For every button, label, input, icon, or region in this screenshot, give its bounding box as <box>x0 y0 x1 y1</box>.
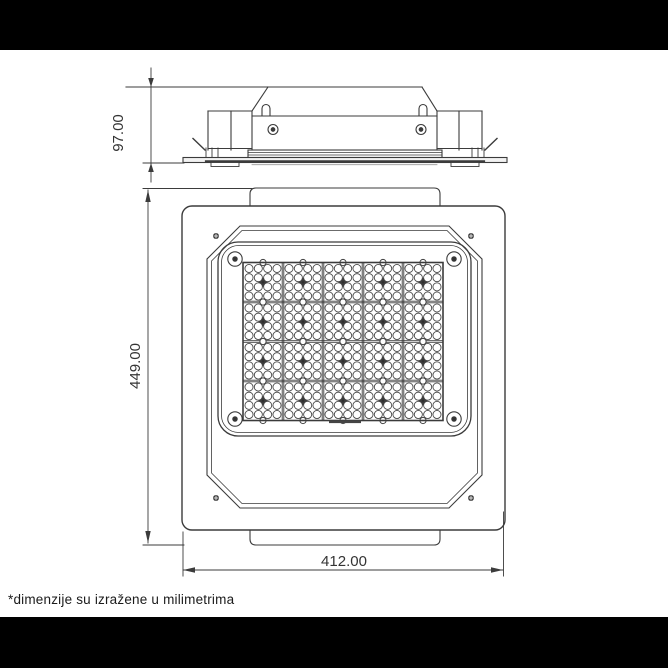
lens-circle <box>264 362 272 370</box>
lens-circle <box>433 362 441 370</box>
lens-circle <box>245 274 253 282</box>
lens-circle <box>405 264 413 272</box>
lens-circle <box>285 283 293 291</box>
lens-circle <box>393 264 401 272</box>
lens-circle <box>344 371 352 379</box>
led-core <box>341 399 344 402</box>
lens-circle <box>325 343 333 351</box>
lens-circle <box>294 392 302 400</box>
lens-circle <box>254 274 262 282</box>
lens-circle <box>424 292 432 300</box>
lens-circle <box>254 371 262 379</box>
lens-circle <box>304 401 312 409</box>
lens-circle <box>393 343 401 351</box>
lens-circle <box>264 304 272 312</box>
module-screw <box>420 299 426 305</box>
lens-circle <box>264 401 272 409</box>
lens-circle <box>405 313 413 321</box>
lens-circle <box>254 410 262 418</box>
lens-circle <box>433 343 441 351</box>
side-view <box>126 87 507 167</box>
lens-circle <box>325 304 333 312</box>
technical-drawing: 97.00 <box>0 0 668 668</box>
letterbox-top <box>0 0 668 50</box>
lens-circle <box>405 392 413 400</box>
led-core <box>301 399 304 402</box>
lens-circle <box>294 313 302 321</box>
lens-circle <box>245 322 253 330</box>
led-core <box>381 320 384 323</box>
module-screw <box>260 378 266 384</box>
lens-circle <box>365 401 373 409</box>
lens-circle <box>273 331 281 339</box>
lens-circle <box>414 274 422 282</box>
lens-circle <box>353 392 361 400</box>
lens-circle <box>313 383 321 391</box>
lens-circle <box>353 331 361 339</box>
lens-circle <box>245 331 253 339</box>
lens-circle <box>424 383 432 391</box>
lens-circle <box>313 392 321 400</box>
lens-circle <box>294 343 302 351</box>
lens-circle <box>374 353 382 361</box>
lens-circle <box>374 292 382 300</box>
letterbox-bottom <box>0 617 668 668</box>
lens-circle <box>273 322 281 330</box>
lens-circle <box>374 322 382 330</box>
lens-circle <box>405 401 413 409</box>
lens-circle <box>384 410 392 418</box>
led-core <box>261 399 264 402</box>
lens-circle <box>294 410 302 418</box>
lens-circle <box>414 304 422 312</box>
lens-circle <box>344 264 352 272</box>
units-footnote: *dimenzije su izražene u milimetrima <box>8 592 234 607</box>
lens-circle <box>405 362 413 370</box>
lens-circle <box>245 371 253 379</box>
lens-circle <box>254 283 262 291</box>
lens-circle <box>325 313 333 321</box>
lens-circle <box>433 304 441 312</box>
lens-circle <box>365 410 373 418</box>
lens-circle <box>304 383 312 391</box>
lens-circle <box>374 410 382 418</box>
led-core <box>341 320 344 323</box>
lens-circle <box>433 410 441 418</box>
module-screw <box>300 338 306 344</box>
lens-circle <box>353 362 361 370</box>
lens-circle <box>393 331 401 339</box>
right-standoff <box>419 105 427 117</box>
lens-circle <box>365 392 373 400</box>
lens-circle <box>304 313 312 321</box>
lens-circle <box>334 401 342 409</box>
lens-circle <box>344 362 352 370</box>
lens-circle <box>365 304 373 312</box>
module-screw <box>340 378 346 384</box>
lens-circle <box>433 331 441 339</box>
lens-circle <box>294 371 302 379</box>
lens-circle <box>353 292 361 300</box>
lens-circle <box>264 283 272 291</box>
lens-circle <box>353 274 361 282</box>
lens-circle <box>245 292 253 300</box>
lens-circle <box>384 362 392 370</box>
lens-circle <box>285 313 293 321</box>
lens-circle <box>414 264 422 272</box>
lens-circle <box>254 392 262 400</box>
module-screw <box>260 299 266 305</box>
lens-circle <box>264 383 272 391</box>
lens-circle <box>424 353 432 361</box>
lens-circle <box>374 383 382 391</box>
lens-circle <box>344 383 352 391</box>
lens-circle <box>325 371 333 379</box>
lens-circle <box>325 353 333 361</box>
led-core <box>381 399 384 402</box>
led-core <box>381 281 384 284</box>
lens-circle <box>414 283 422 291</box>
lens-circle <box>344 274 352 282</box>
lens-circle <box>424 274 432 282</box>
lens-circle <box>325 362 333 370</box>
lens-circle <box>304 304 312 312</box>
module-screw <box>380 338 386 344</box>
lens-circle <box>414 371 422 379</box>
lens-circle <box>353 401 361 409</box>
lens-circle <box>325 401 333 409</box>
lens-circle <box>313 292 321 300</box>
front-view <box>182 188 505 545</box>
dimension-label-97: 97.00 <box>110 114 127 152</box>
lens-circle <box>374 313 382 321</box>
lens-circle <box>405 331 413 339</box>
lens-circle <box>424 304 432 312</box>
lens-circle <box>304 410 312 418</box>
lens-circle <box>245 383 253 391</box>
lens-circle <box>393 371 401 379</box>
lens-circle <box>254 304 262 312</box>
lens-circle <box>313 401 321 409</box>
lens-circle <box>374 343 382 351</box>
led-core <box>261 320 264 323</box>
lens-circle <box>264 274 272 282</box>
lens-circle <box>393 313 401 321</box>
lens-circle <box>285 331 293 339</box>
led-core <box>341 281 344 284</box>
lens-circle <box>245 401 253 409</box>
lens-circle <box>433 292 441 300</box>
lens-circle <box>254 401 262 409</box>
lens-circle <box>334 410 342 418</box>
lens-circle <box>393 362 401 370</box>
led-core <box>261 281 264 284</box>
lens-circle <box>365 383 373 391</box>
dimension-label-412: 412.00 <box>321 553 367 570</box>
lens-circle <box>273 410 281 418</box>
lens-circle <box>344 343 352 351</box>
back-plate <box>182 206 505 530</box>
lens-circle <box>325 264 333 272</box>
lens-circle <box>313 274 321 282</box>
lens-circle <box>424 371 432 379</box>
left-standoff <box>262 105 270 117</box>
lens-circle <box>374 304 382 312</box>
lens-circle <box>304 353 312 361</box>
lens-circle <box>414 353 422 361</box>
lens-circle <box>294 304 302 312</box>
lens-circle <box>365 353 373 361</box>
lens-circle <box>374 371 382 379</box>
lens-circle <box>405 343 413 351</box>
led-core <box>261 360 264 363</box>
lens-circle <box>325 292 333 300</box>
lens-circle <box>344 313 352 321</box>
led-core <box>381 360 384 363</box>
lens-circle <box>285 383 293 391</box>
lens-circle <box>433 392 441 400</box>
lens-circle <box>273 313 281 321</box>
lens-circle <box>344 292 352 300</box>
lens-circle <box>384 283 392 291</box>
lens-circle <box>245 343 253 351</box>
lens-circle <box>264 371 272 379</box>
lens-circle <box>344 304 352 312</box>
lens-circle <box>384 292 392 300</box>
lens-circle <box>264 264 272 272</box>
lens-circle <box>285 264 293 272</box>
lens-circle <box>264 353 272 361</box>
lens-circle <box>405 383 413 391</box>
lens-circle <box>384 274 392 282</box>
lens-circle <box>384 401 392 409</box>
lens-circle <box>334 274 342 282</box>
lens-circle <box>384 353 392 361</box>
lens-circle <box>424 362 432 370</box>
lens-circle <box>365 322 373 330</box>
lens-circle <box>245 283 253 291</box>
lens-circle <box>334 343 342 351</box>
lens-circle <box>285 322 293 330</box>
lens-circle <box>424 264 432 272</box>
lens-circle <box>384 383 392 391</box>
lens-circle <box>405 371 413 379</box>
lens-circle <box>264 331 272 339</box>
lens-circle <box>285 401 293 409</box>
lens-circle <box>374 264 382 272</box>
lens-circle <box>414 322 422 330</box>
lens-circle <box>344 392 352 400</box>
lens-circle <box>433 353 441 361</box>
lens-circle <box>285 362 293 370</box>
lens-circle <box>414 331 422 339</box>
lens-circle <box>365 313 373 321</box>
lens-circle <box>353 322 361 330</box>
lens-circle <box>254 313 262 321</box>
lens-circle <box>344 322 352 330</box>
lens-circle <box>304 331 312 339</box>
lens-circle <box>334 371 342 379</box>
lens-circle <box>414 401 422 409</box>
lens-circle <box>405 274 413 282</box>
lens-circle <box>353 313 361 321</box>
lens-circle <box>294 383 302 391</box>
lens-circle <box>353 353 361 361</box>
lens-circle <box>325 410 333 418</box>
lens-circle <box>294 353 302 361</box>
module-screw <box>420 378 426 384</box>
lens-circle <box>254 383 262 391</box>
lens-circle <box>374 401 382 409</box>
lens-circle <box>285 343 293 351</box>
lens-circle <box>374 362 382 370</box>
lens-circle <box>374 331 382 339</box>
lens-circle <box>424 322 432 330</box>
lens-circle <box>374 274 382 282</box>
lens-circle <box>313 371 321 379</box>
lens-circle <box>433 274 441 282</box>
lens-circle <box>304 343 312 351</box>
lens-circle <box>393 392 401 400</box>
lens-circle <box>245 410 253 418</box>
lens-circle <box>304 274 312 282</box>
lens-circle <box>273 264 281 272</box>
lens-circle <box>344 331 352 339</box>
lens-circle <box>273 371 281 379</box>
lens-circle <box>304 392 312 400</box>
lens-circle <box>365 264 373 272</box>
lens-circle <box>334 264 342 272</box>
lens-circle <box>254 264 262 272</box>
lens-circle <box>285 392 293 400</box>
lens-circle <box>365 362 373 370</box>
lens-circle <box>353 383 361 391</box>
lens-circle <box>264 392 272 400</box>
module-screw <box>340 338 346 344</box>
lens-circle <box>273 343 281 351</box>
lens-circle <box>304 264 312 272</box>
module-screw <box>340 299 346 305</box>
lens-circle <box>325 283 333 291</box>
lens-circle <box>405 304 413 312</box>
lens-circle <box>393 401 401 409</box>
lens-circle <box>313 362 321 370</box>
lens-circle <box>384 343 392 351</box>
lens-circle <box>414 292 422 300</box>
lens-circle <box>414 410 422 418</box>
lens-circle <box>285 353 293 361</box>
lens-circle <box>365 371 373 379</box>
lens-circle <box>384 264 392 272</box>
lens-circle <box>384 331 392 339</box>
side-screw-left <box>268 125 278 135</box>
lens-circle <box>334 283 342 291</box>
lens-circle <box>313 304 321 312</box>
lens-circle <box>405 283 413 291</box>
bottom-tab <box>250 530 440 545</box>
lens-circle <box>374 283 382 291</box>
lens-circle <box>294 264 302 272</box>
lens-circle <box>273 283 281 291</box>
lens-circle <box>384 304 392 312</box>
lens-circle <box>294 283 302 291</box>
lens-circle <box>405 353 413 361</box>
lens-circle <box>264 313 272 321</box>
lens-circle <box>294 362 302 370</box>
lens-circle <box>414 313 422 321</box>
lens-circle <box>334 383 342 391</box>
led-core <box>421 281 424 284</box>
lens-circle <box>384 392 392 400</box>
lens-circle <box>294 322 302 330</box>
lens-circle <box>285 371 293 379</box>
lens-circle <box>424 401 432 409</box>
lens-circle <box>353 283 361 291</box>
lens-circle <box>313 353 321 361</box>
lens-circle <box>294 292 302 300</box>
lens-circle <box>334 331 342 339</box>
lens-circle <box>264 343 272 351</box>
lens-circle <box>273 304 281 312</box>
lens-circle <box>313 410 321 418</box>
lens-circle <box>285 274 293 282</box>
lens-circle <box>334 392 342 400</box>
dimension-label-449: 449.00 <box>127 343 144 389</box>
lens-circle <box>353 410 361 418</box>
lens-circle <box>304 292 312 300</box>
lens-circle <box>304 371 312 379</box>
lens-circle <box>245 392 253 400</box>
lens-circle <box>304 362 312 370</box>
lens-circle <box>313 283 321 291</box>
lens-circle <box>353 343 361 351</box>
lens-circle <box>393 274 401 282</box>
lens-circle <box>285 304 293 312</box>
lens-circle <box>313 322 321 330</box>
lens-circle <box>424 392 432 400</box>
module-screw <box>420 338 426 344</box>
lens-circle <box>365 343 373 351</box>
lens-circle <box>334 292 342 300</box>
lens-circle <box>365 274 373 282</box>
module-screw <box>300 378 306 384</box>
lens-circle <box>424 283 432 291</box>
lens-circle <box>254 343 262 351</box>
lens-circle <box>264 292 272 300</box>
lens-circle <box>313 313 321 321</box>
lens-circle <box>325 274 333 282</box>
side-screw-right <box>416 125 426 135</box>
lens-circle <box>285 292 293 300</box>
lens-circle <box>334 353 342 361</box>
lens-circle <box>393 383 401 391</box>
led-core <box>301 360 304 363</box>
lens-circle <box>433 322 441 330</box>
lens-circle <box>344 410 352 418</box>
lens-circle <box>344 283 352 291</box>
lens-circle <box>254 322 262 330</box>
module-screw <box>300 299 306 305</box>
lens-circle <box>365 283 373 291</box>
lens-circle <box>245 362 253 370</box>
lens-circle <box>294 274 302 282</box>
lens-circle <box>344 401 352 409</box>
top-tab <box>250 188 440 206</box>
lens-circle <box>384 313 392 321</box>
lens-circle <box>414 383 422 391</box>
lens-circle <box>384 371 392 379</box>
lens-circle <box>254 353 262 361</box>
